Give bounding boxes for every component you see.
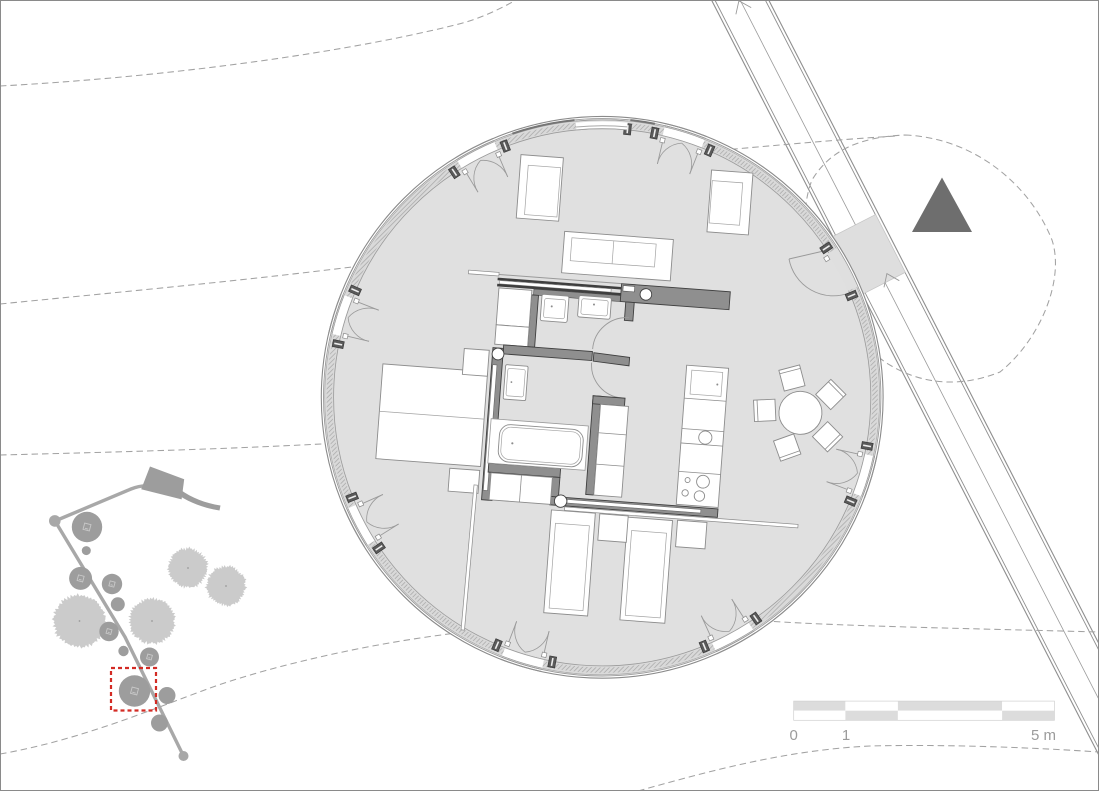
svg-text:5 m: 5 m bbox=[1031, 727, 1056, 744]
svg-text:1: 1 bbox=[842, 727, 850, 744]
svg-text:0: 0 bbox=[790, 727, 798, 744]
